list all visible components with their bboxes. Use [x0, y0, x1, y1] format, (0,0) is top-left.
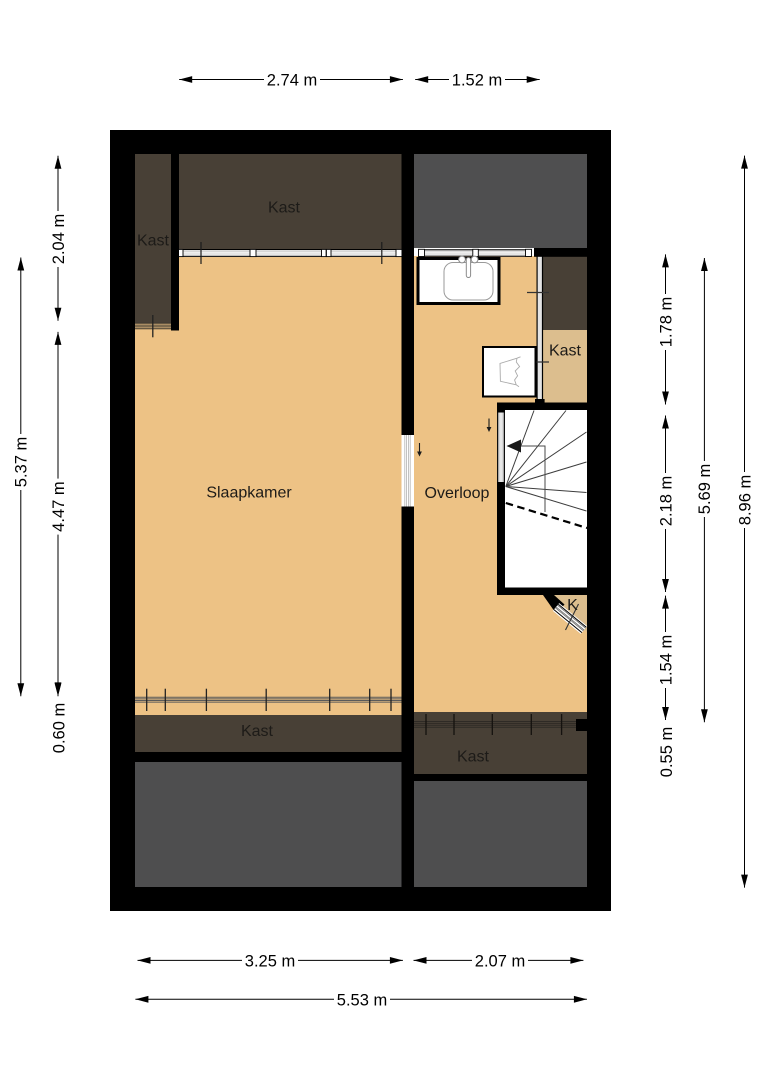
- svg-text:2.07 m: 2.07 m: [475, 952, 525, 970]
- svg-text:8.96 m: 8.96 m: [736, 475, 754, 525]
- svg-text:5.37 m: 5.37 m: [13, 437, 31, 487]
- svg-text:Overloop: Overloop: [425, 485, 490, 502]
- svg-text:Slaapkamer: Slaapkamer: [206, 485, 292, 502]
- svg-text:Kast: Kast: [549, 343, 582, 360]
- svg-text:2.18 m: 2.18 m: [657, 476, 675, 526]
- svg-text:1.78 m: 1.78 m: [657, 297, 675, 347]
- svg-text:0.60 m: 0.60 m: [51, 703, 69, 753]
- svg-text:Kast: Kast: [457, 749, 490, 766]
- svg-text:4.47 m: 4.47 m: [50, 481, 68, 531]
- svg-text:1.52 m: 1.52 m: [452, 71, 502, 89]
- svg-text:5.53 m: 5.53 m: [337, 991, 387, 1009]
- svg-text:Kast: Kast: [137, 233, 170, 250]
- svg-text:0.55 m: 0.55 m: [658, 727, 676, 777]
- svg-text:Kast: Kast: [268, 200, 301, 217]
- svg-text:2.74 m: 2.74 m: [267, 71, 317, 89]
- svg-text:5.69 m: 5.69 m: [696, 464, 714, 514]
- svg-text:3.25 m: 3.25 m: [245, 952, 295, 970]
- svg-text:Kast: Kast: [241, 723, 274, 740]
- svg-text:K: K: [567, 597, 578, 614]
- svg-text:2.04 m: 2.04 m: [50, 214, 68, 264]
- svg-text:1.54 m: 1.54 m: [657, 635, 675, 685]
